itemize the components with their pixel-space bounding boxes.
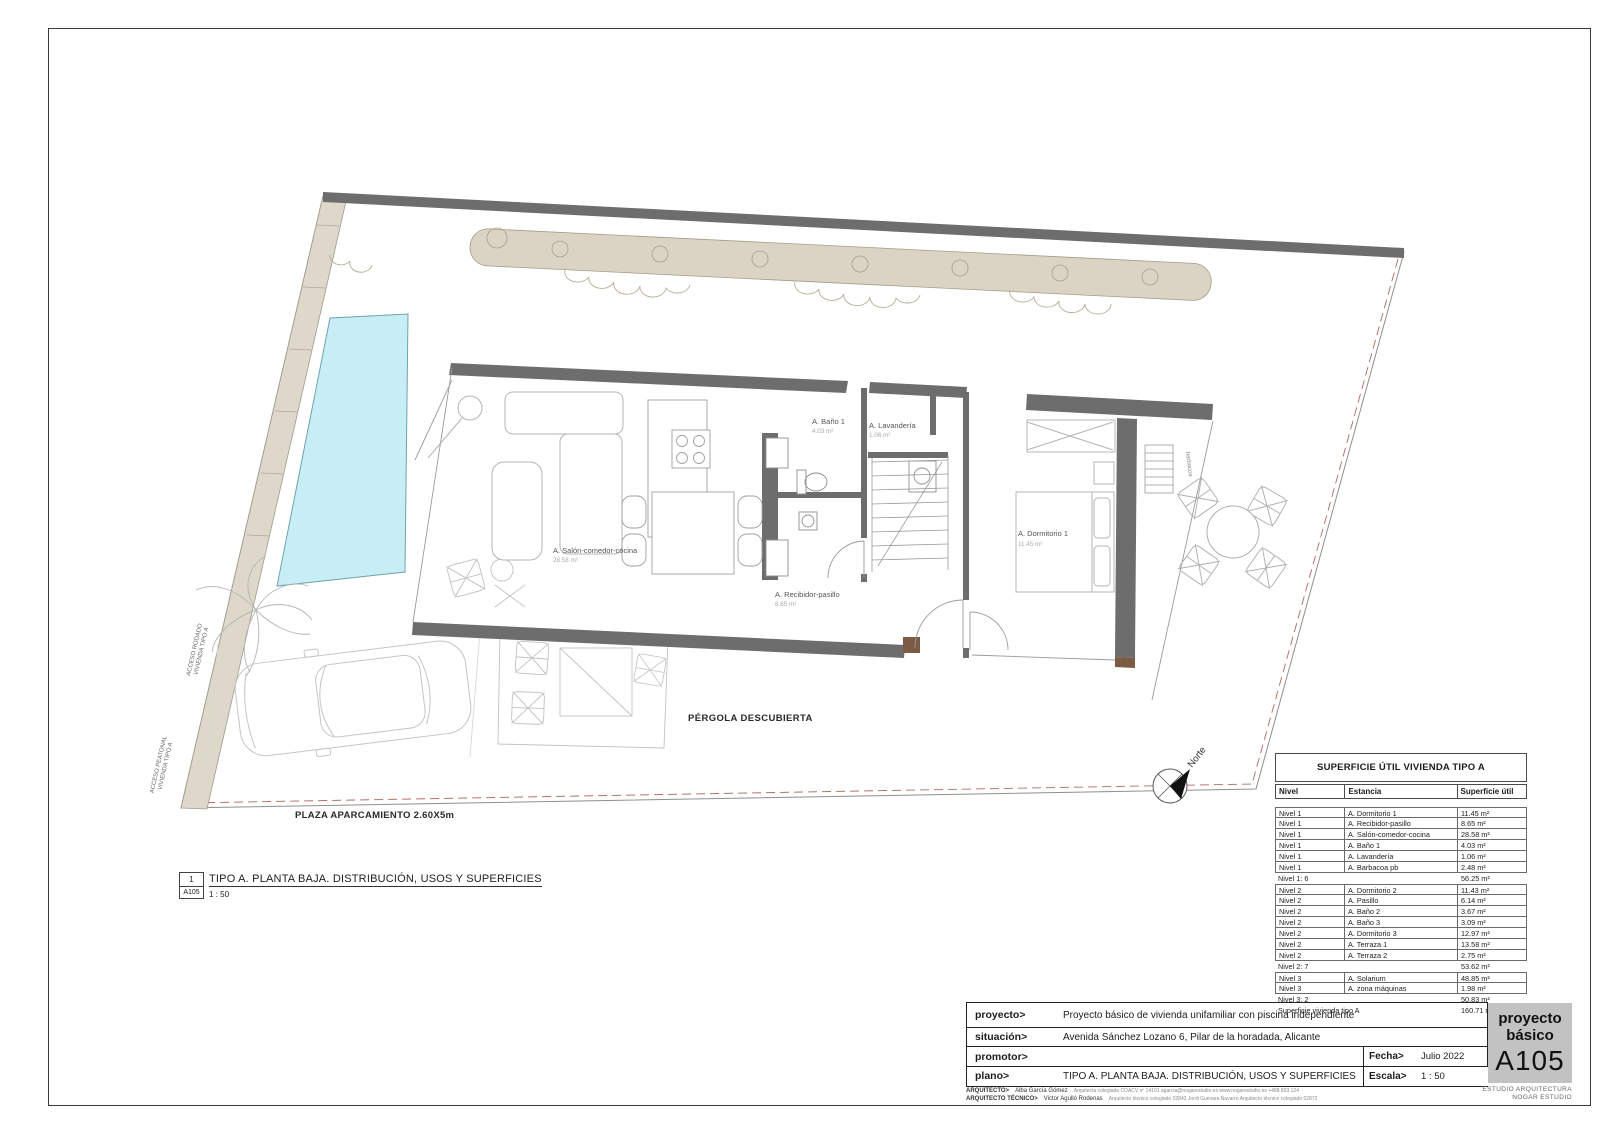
table-row: Nivel 1A. Lavandería1.06 m² [1275, 851, 1527, 862]
escala-cell: Escala> 1 : 50 [1363, 1067, 1489, 1086]
room-label-dormitorio1: A. Dormitorio 1 [1018, 529, 1068, 538]
subtotal-row: Nivel 2: 753.62 m² [1275, 961, 1527, 972]
table-row: Nivel 2A. Terraza 113.58 m² [1275, 939, 1527, 950]
fecha-cell: Fecha> Julio 2022 [1363, 1047, 1489, 1065]
area-table-title: SUPERFICIE ÚTIL VIVIENDA TIPO A [1275, 753, 1527, 782]
title-block-row-plano: plano> TIPO A. PLANTA BAJA. DISTRIBUCIÓN… [967, 1067, 1487, 1086]
area-table-header: Nivel Estancia Superficie útil [1275, 784, 1527, 799]
col-header-nivel: Nivel [1276, 785, 1345, 798]
subtotal-row: Nivel 1: 656.25 m² [1275, 873, 1527, 884]
bedroom-furniture [1016, 420, 1115, 592]
area-table: SUPERFICIE ÚTIL VIVIENDA TIPO A Nivel Es… [1275, 753, 1527, 1016]
drawing-number-box: 1 A105 [179, 872, 204, 899]
table-row: Nivel 3A. Solarium48.85 m² [1275, 972, 1527, 983]
table-row: Nivel 1A. Salón-comedor-cocina28.58 m² [1275, 829, 1527, 840]
col-header-estancia: Estancia [1345, 785, 1457, 798]
table-row: Nivel 1A. Dormitorio 111.45 m² [1275, 807, 1527, 818]
table-row: Nivel 2A. Dormitorio 211.43 m² [1275, 884, 1527, 895]
drawing-number: 1 [180, 873, 203, 887]
table-row: Nivel 2A. Baño 23.67 m² [1275, 906, 1527, 917]
room-label-lavanderia: A. Lavandería [869, 421, 917, 430]
room-label-bano1: A. Baño 1 [812, 417, 845, 426]
acceso-rodado-label: ACCESO RODADO VIVIENDA TIPO A [186, 623, 211, 678]
room-area-salon: 28.58 m² [553, 557, 578, 564]
table-row: Nivel 1A. Baño 14.03 m² [1275, 840, 1527, 851]
table-row: Nivel 1A. Barbacoa pb2.48 m² [1275, 862, 1527, 873]
drawing-sheet-ref: A105 [180, 887, 203, 899]
parking-label: PLAZA APARCAMIENTO 2.60X5m [295, 810, 454, 821]
room-area-lavanderia: 1.06 m² [869, 432, 890, 439]
room-area-bano1: 4.03 m² [812, 428, 833, 435]
acceso-peatonal-label: ACCESO PEATONAL VIVIENDA TIPO A [150, 735, 176, 796]
studio-name: ESTUDIO ARQUITECTURA NOGAR ESTUDIO [1408, 1086, 1572, 1101]
drawing-scale: 1 : 50 [209, 890, 542, 899]
col-header-superficie: Superficie útil [1458, 785, 1526, 798]
area-table-rows: Nivel 1A. Dormitorio 111.45 m²Nivel 1A. … [1275, 807, 1527, 1016]
stamp-line1: proyecto [1498, 1010, 1561, 1027]
pergola-label: PÉRGOLA DESCUBIERTA [688, 713, 813, 724]
sheet: A. Salón-comedor-cocina 28.58 m² A. Baño… [0, 0, 1600, 1131]
title-block-row-situacion: situación> Avenida Sánchez Lozano 6, Pil… [967, 1028, 1487, 1047]
title-block: proyecto> Proyecto básico de vivienda un… [966, 1002, 1488, 1087]
title-block-row-proyecto: proyecto> Proyecto básico de vivienda un… [967, 1003, 1487, 1028]
table-row: Nivel 3A. zona máquinas1.98 m² [1275, 983, 1527, 994]
stamp-sheet-code: A105 [1495, 1046, 1564, 1076]
title-block-row-promotor: promotor> Fecha> Julio 2022 [967, 1047, 1487, 1066]
room-area-dormitorio1: 11.45 m² [1018, 541, 1042, 548]
table-row: Nivel 2A. Terraza 22.75 m² [1275, 950, 1527, 961]
table-row: Nivel 1A. Recibidor-pasillo8.65 m² [1275, 818, 1527, 829]
drawing-title-text: TIPO A. PLANTA BAJA. DISTRIBUCIÓN, USOS … [209, 873, 542, 887]
room-label-recibidor: A. Recibidor-pasillo [775, 590, 840, 599]
barbecue [1145, 445, 1173, 493]
north-compass [1153, 769, 1190, 803]
room-area-recibidor: 8.65 m² [775, 601, 796, 608]
stamp-line2: básico [1506, 1027, 1554, 1044]
room-label-salon: A. Salón-comedor-cocina [553, 546, 638, 555]
table-row: Nivel 2A. Baño 33.09 m² [1275, 917, 1527, 928]
table-row: Nivel 2A. Dormitorio 312.97 m² [1275, 928, 1527, 939]
table-row: Nivel 2A. Pasillo6.14 m² [1275, 895, 1527, 906]
project-stamp: proyecto básico A105 [1488, 1003, 1572, 1083]
